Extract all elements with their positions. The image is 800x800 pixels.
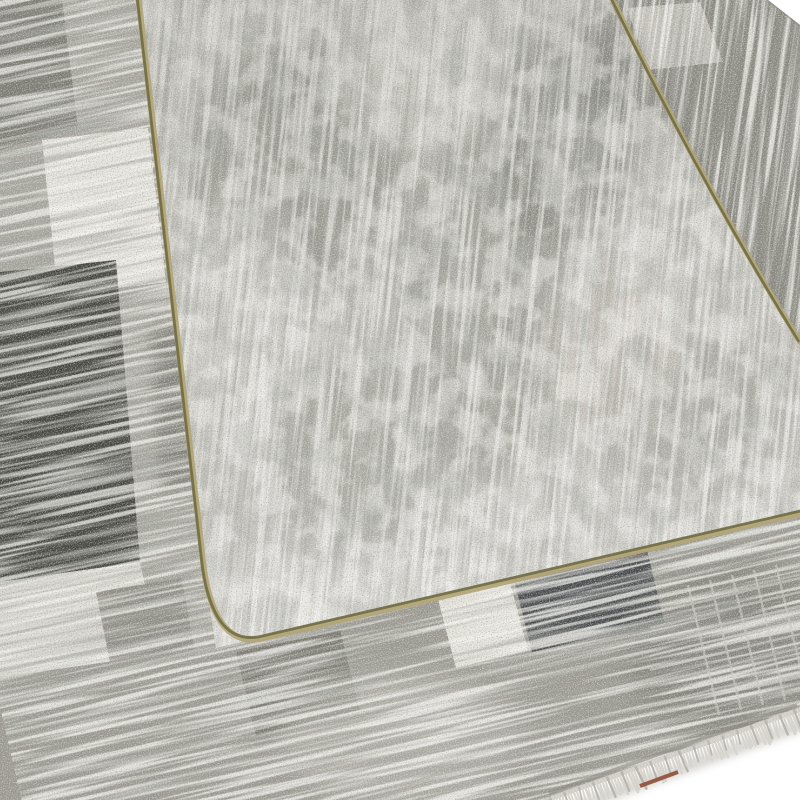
- pile-grain: [0, 0, 800, 800]
- rug: [0, 0, 800, 800]
- rug-photo-canvas: [0, 0, 800, 800]
- rug-product-photo: [0, 0, 800, 800]
